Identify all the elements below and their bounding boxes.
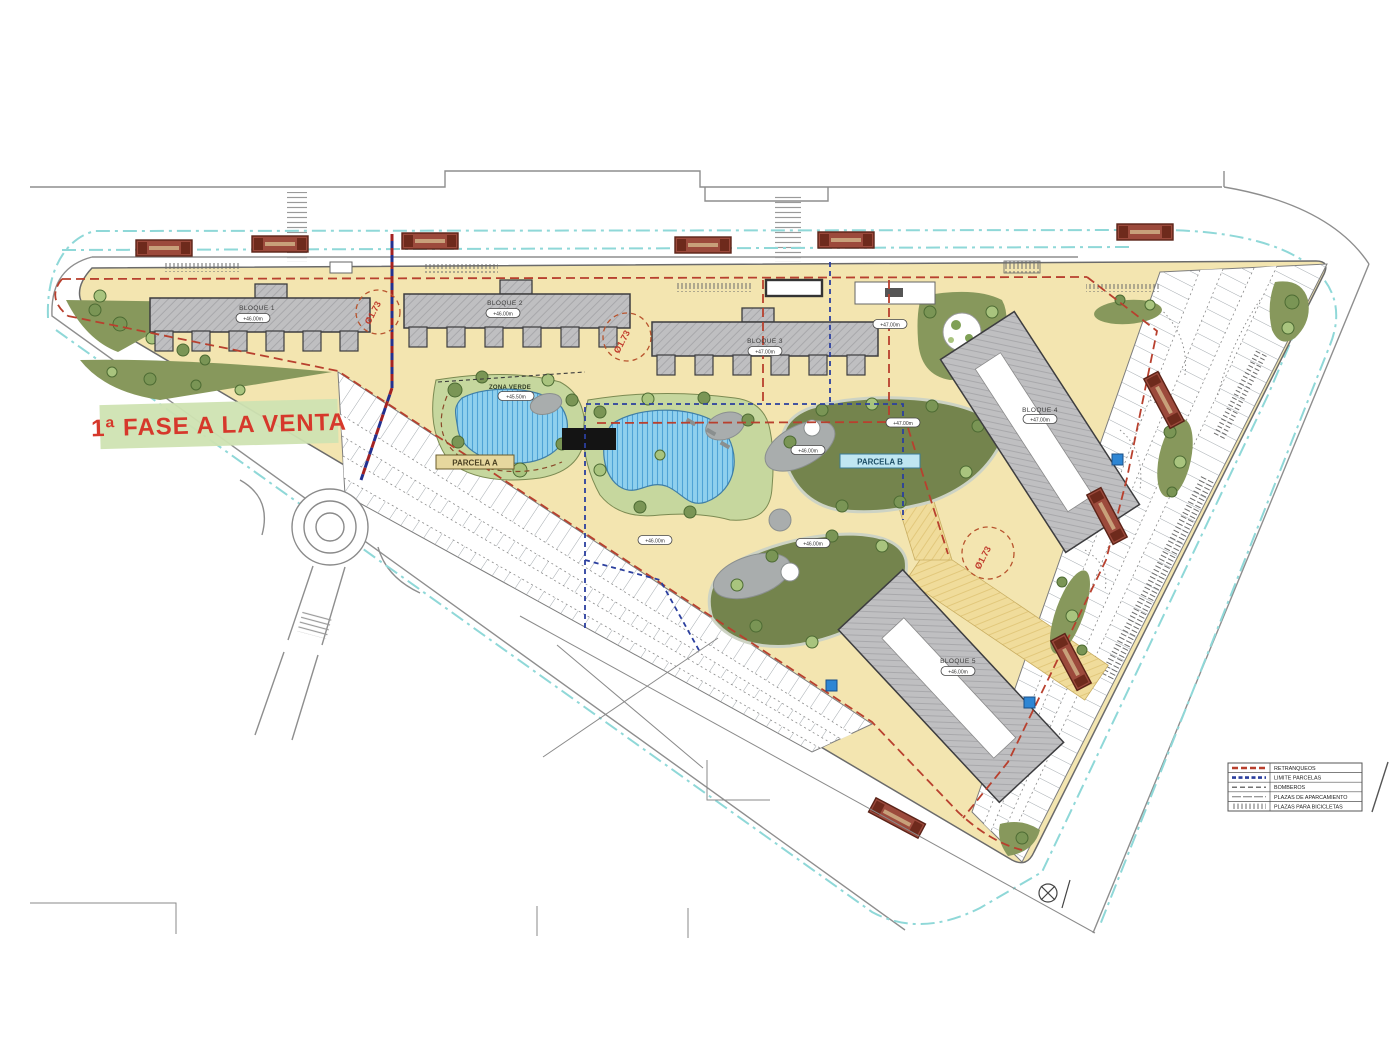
svg-text:+47.00m: +47.00m	[880, 323, 900, 329]
tree-icon	[476, 371, 488, 383]
building-tooth	[485, 327, 503, 347]
tree-icon	[876, 540, 888, 552]
bench-marker	[1117, 224, 1173, 240]
building-tooth	[340, 331, 358, 351]
legend: RETRANQUEOS LIMITE PARCELAS BOMBEROS PLA…	[1228, 762, 1388, 812]
tree-icon	[698, 392, 710, 404]
tree-icon	[1016, 832, 1028, 844]
tree-icon	[1145, 300, 1155, 310]
building-tooth	[733, 355, 751, 375]
right-road-connector	[1224, 187, 1369, 264]
tree-icon	[731, 579, 743, 591]
tree-icon	[191, 380, 201, 390]
survey-marker-icon	[1039, 880, 1070, 908]
bloque-3-label: BLOQUE 3	[747, 338, 783, 345]
crosswalk-south	[297, 610, 332, 639]
bloque-5-label: BLOQUE 5	[940, 658, 976, 665]
building-tooth	[409, 327, 427, 347]
building-tooth	[266, 331, 284, 351]
svg-text:PLAZAS DE APARCAMIENTO: PLAZAS DE APARCAMIENTO	[1274, 795, 1348, 801]
crosswalk-top-2	[775, 196, 801, 262]
tree-icon	[1285, 295, 1299, 309]
building-tooth	[447, 327, 465, 347]
svg-text:PARCELA B: PARCELA B	[857, 458, 903, 467]
legend-sample-bicicletas	[1232, 804, 1266, 810]
svg-text:+45.50m: +45.50m	[506, 395, 526, 401]
svg-text:+47.00m: +47.00m	[755, 350, 775, 356]
tree-icon	[566, 394, 578, 406]
tree-icon	[894, 496, 906, 508]
zona-verde-label: ZONA VERDE	[489, 385, 531, 391]
building-tooth	[847, 355, 865, 375]
tree-icon	[1077, 645, 1087, 655]
phase-banner: 1ª FASE A LA VENTA	[91, 399, 348, 450]
svg-text:+46.00m: +46.00m	[645, 539, 665, 545]
bloque-4-label: BLOQUE 4	[1022, 407, 1058, 414]
tree-icon	[542, 374, 554, 386]
tree-icon	[144, 373, 156, 385]
tree-icon	[113, 317, 127, 331]
roundabout-merge-arc-1	[240, 480, 264, 535]
building-tooth	[695, 355, 713, 375]
tree-icon	[986, 306, 998, 318]
tree-icon	[960, 466, 972, 478]
svg-text:+46.00m: +46.00m	[798, 449, 818, 455]
building-tooth	[561, 327, 579, 347]
tree-icon	[1057, 577, 1067, 587]
building-tooth	[229, 331, 247, 351]
tree-icon	[594, 464, 606, 476]
south-road-edge-1	[255, 566, 313, 735]
top-road-notch	[705, 187, 828, 201]
tree-icon	[750, 620, 762, 632]
playground-circle	[781, 563, 799, 581]
tree-icon	[1282, 322, 1294, 334]
bike-lane-top-second	[62, 247, 1130, 250]
tree-icon	[1066, 610, 1078, 622]
tree-icon	[766, 550, 778, 562]
svg-text:BOMBEROS: BOMBEROS	[1274, 785, 1306, 791]
tree-icon	[924, 306, 936, 318]
tree-icon	[742, 414, 754, 426]
tree-icon	[926, 400, 938, 412]
tree-icon	[200, 355, 210, 365]
svg-text:PLAZAS PARA BICICLETAS: PLAZAS PARA BICICLETAS	[1274, 804, 1343, 810]
tree-icon	[836, 500, 848, 512]
bloque-1-label: BLOQUE 1	[239, 305, 275, 312]
building-tooth	[303, 331, 321, 351]
tree-icon	[448, 383, 462, 397]
bench-marker	[252, 236, 308, 252]
roundabout	[292, 489, 368, 565]
bench-marker	[675, 237, 731, 253]
svg-text:+46.00m: +46.00m	[493, 312, 513, 318]
tree-icon	[594, 406, 606, 418]
tree-icon	[235, 385, 245, 395]
tree-icon	[806, 636, 818, 648]
tree-icon	[1167, 487, 1177, 497]
svg-text:RETRANQUEOS: RETRANQUEOS	[1274, 766, 1316, 772]
tree-icon	[634, 501, 646, 513]
site-plan: Ø1.73 Ø1.73 Ø1.73 BLOQUE 1 +46.00m BLOQU…	[0, 0, 1400, 1050]
top-road-outer-edge	[30, 171, 1222, 187]
south-road-edge-2	[292, 567, 345, 740]
svg-text:LIMITE PARCELAS: LIMITE PARCELAS	[1274, 776, 1322, 782]
building-tooth	[657, 355, 675, 375]
tree-icon	[1174, 456, 1186, 468]
svg-text:PARCELA A: PARCELA A	[452, 459, 498, 468]
building-tooth	[809, 355, 827, 375]
tree-icon	[107, 367, 117, 377]
svg-text:+46.00m: +46.00m	[948, 670, 968, 676]
bench-marker	[402, 233, 458, 249]
svg-text:+47.00m: +47.00m	[1030, 418, 1050, 424]
tree-icon	[89, 304, 101, 316]
tree-icon	[94, 290, 106, 302]
dark-structure	[562, 428, 616, 450]
building-tooth	[771, 355, 789, 375]
tree-icon	[513, 463, 527, 477]
bench-marker	[136, 240, 192, 256]
bloque-2-label: BLOQUE 2	[487, 300, 523, 307]
building-tooth	[523, 327, 541, 347]
svg-text:+47.00m: +47.00m	[893, 421, 913, 427]
tree-icon	[816, 404, 828, 416]
legend-slash-mark	[1372, 762, 1388, 812]
svg-text:+46.00m: +46.00m	[803, 542, 823, 548]
tree-icon	[655, 450, 665, 460]
bench-marker	[818, 232, 874, 248]
svg-text:+46.00m: +46.00m	[243, 317, 263, 323]
tree-icon	[177, 344, 189, 356]
tree-icon	[684, 506, 696, 518]
